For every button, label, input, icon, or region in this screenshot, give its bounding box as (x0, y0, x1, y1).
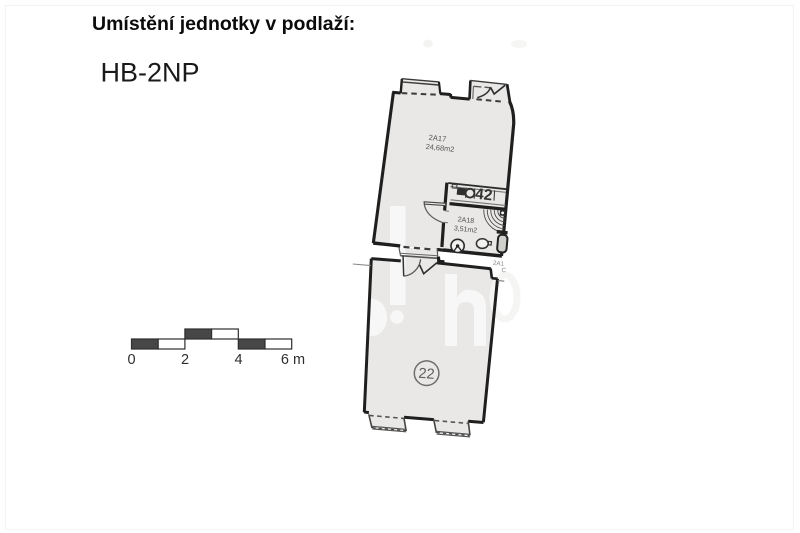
svg-text:HB-2NP: HB-2NP (101, 58, 200, 88)
svg-text:42: 42 (474, 186, 493, 205)
svg-text:2A18: 2A18 (457, 215, 474, 225)
svg-text:Umístění jednotky v podlaží:: Umístění jednotky v podlaží: (92, 13, 355, 35)
svg-text:0: 0 (127, 352, 135, 368)
svg-text:6 m: 6 m (281, 352, 305, 368)
svg-text:22: 22 (418, 366, 435, 383)
svg-text:4: 4 (234, 352, 242, 368)
svg-text:2: 2 (181, 352, 189, 368)
